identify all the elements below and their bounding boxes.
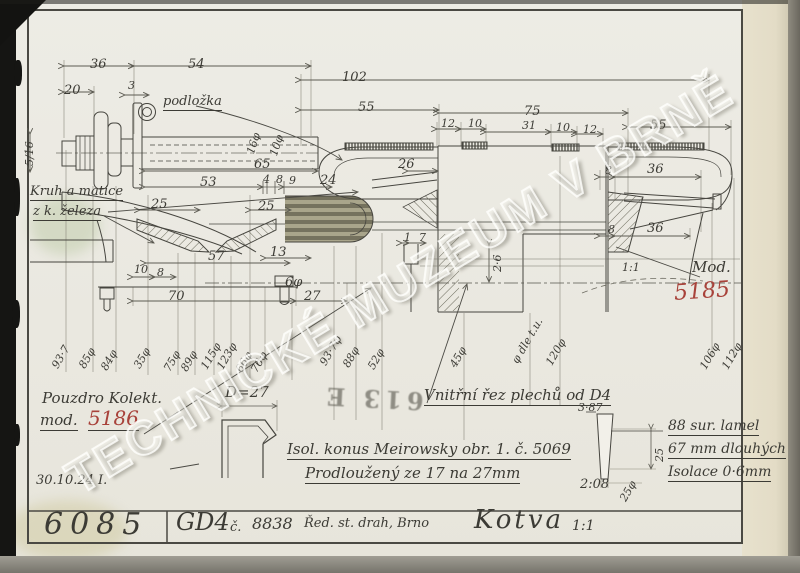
dim-label: 5/16 xyxy=(24,141,36,166)
dim-label: 10 xyxy=(468,118,482,130)
note-vnitrni-rez: Vnitřní řez plechů od D4 xyxy=(424,388,611,406)
washer-disc xyxy=(94,112,108,189)
scan-edge-bottom xyxy=(0,556,800,573)
dim-label: 2:08 xyxy=(580,478,609,492)
dim-label: 25 xyxy=(654,448,666,462)
railway-authority: Řed. st. drah, Brno xyxy=(304,517,429,531)
dim-label: 55 xyxy=(358,101,375,115)
note-kruh-line1: Kruh a matice xyxy=(30,185,123,201)
scan-artifact xyxy=(14,178,20,216)
dim-label: 54 xyxy=(188,58,205,72)
scan-corner xyxy=(0,0,46,46)
scan-edge-left xyxy=(0,0,16,573)
scan-artifact xyxy=(12,300,20,328)
part-name: Kotva xyxy=(474,507,564,534)
dim-label: 20 xyxy=(64,84,81,98)
number-label: č. xyxy=(230,521,241,535)
dim-label: 6φ xyxy=(285,276,302,290)
scan-artifact xyxy=(14,60,22,86)
dim-label: 10 xyxy=(134,264,148,276)
note-d27: D=27 xyxy=(225,385,269,401)
note-kruh-line2: z k. železa xyxy=(33,205,101,221)
dim-label: 57 xyxy=(208,250,225,264)
dim-label: 4 xyxy=(263,174,270,186)
dim-label: 25 xyxy=(151,198,168,212)
note-lamel-length: 67 mm dlouhých xyxy=(668,442,786,459)
bolt xyxy=(100,288,114,299)
dim-label: 1 xyxy=(404,232,411,244)
press-fingers xyxy=(137,219,285,252)
d27-bracket-detail xyxy=(222,400,277,478)
note-mod-5186: 5186 xyxy=(88,408,139,431)
eyelet-ring xyxy=(139,104,156,121)
dim-label: 55 xyxy=(650,119,667,133)
dim-label: 1:1 xyxy=(622,262,640,274)
coil-end-right xyxy=(608,147,732,200)
dim-label: 53 xyxy=(200,176,217,190)
dim-label: 10 xyxy=(556,122,570,134)
spacer xyxy=(121,139,133,166)
note-pouzdro: Pouzdro Kolekt. xyxy=(42,391,162,407)
note-prodlouzeny: Prodloužený ze 17 na 27mm xyxy=(305,466,520,484)
dim-label: 13 xyxy=(270,246,287,260)
machine-type: GD4 xyxy=(176,510,230,535)
dim-label: 75 xyxy=(524,105,541,119)
note-mod-5185: 5185 xyxy=(673,278,730,305)
note-isolace: Isolace 0·6mm xyxy=(668,465,771,482)
dim-label: 24 xyxy=(320,174,337,188)
dim-label: 7 xyxy=(419,232,426,244)
dim-label: 8 xyxy=(157,267,164,279)
banding-wire xyxy=(345,143,433,150)
dim-label: 8 xyxy=(608,224,615,236)
dim-label: 36 xyxy=(647,222,664,236)
drawing-scale: 1:1 xyxy=(572,519,595,534)
note-isol-konus: Isol. konus Meirowsky obr. 1. č. 5069 xyxy=(287,442,571,460)
podlozka-plate xyxy=(133,103,142,188)
dim-label: 2·6 xyxy=(492,255,504,273)
note-podlozka: podložka xyxy=(163,95,222,111)
extension-lines xyxy=(64,60,734,440)
dim-label: 70 xyxy=(168,290,185,304)
dim-label: 102 xyxy=(342,71,367,85)
dim-label: 26 xyxy=(398,158,415,172)
note-date: 30.10.24 I. xyxy=(36,474,107,488)
note-mod-label-5185: Mod. xyxy=(692,260,731,276)
dim-label: 9 xyxy=(289,175,296,187)
scan-artifact xyxy=(14,424,20,446)
note-lamel-count: 88 sur. lamel xyxy=(668,419,759,436)
dim-label: 8 xyxy=(605,165,612,177)
scan-edge-top xyxy=(0,0,800,4)
dim-label: 36 xyxy=(90,58,107,72)
laminate-stack xyxy=(285,196,373,242)
dim-label: 12 xyxy=(583,124,597,136)
dim-label: 31 xyxy=(522,120,536,132)
office-stamp: 613 E xyxy=(321,381,424,415)
dim-label: 27 xyxy=(304,290,321,304)
dim-label: 65 xyxy=(254,158,271,172)
washer-disc xyxy=(108,123,121,176)
serial-number: 8838 xyxy=(252,516,293,533)
note-mod-label: mod. xyxy=(40,413,78,431)
dim-label: 36 xyxy=(647,163,664,177)
dim-label: 12 xyxy=(441,118,455,130)
scanned-technical-drawing: 36 54 20 3 102 55 75 55 12 10 31 10 12 5… xyxy=(0,0,800,573)
drawing-number: 6085 xyxy=(44,509,148,541)
scan-edge-right xyxy=(788,0,800,573)
dim-label: 3 xyxy=(128,80,135,92)
bolt-head xyxy=(62,141,76,166)
dim-label: 25 xyxy=(258,200,275,214)
dim-label: 8 xyxy=(276,174,283,186)
